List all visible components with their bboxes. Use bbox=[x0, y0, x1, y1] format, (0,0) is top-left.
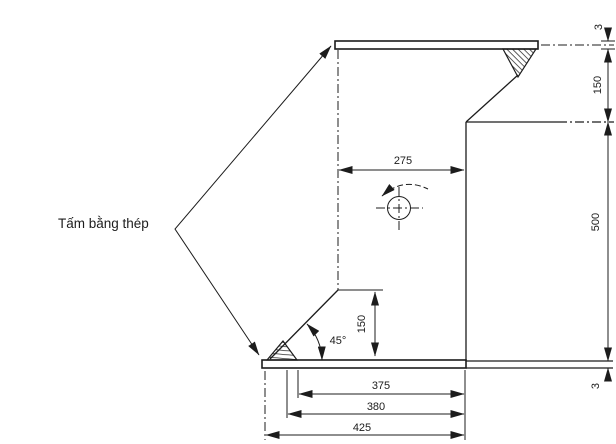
dim-value-web-height: 500 bbox=[590, 213, 602, 231]
dim-value: 275 bbox=[394, 155, 412, 167]
dim-value: 380 bbox=[367, 401, 385, 413]
chamfer-45-edge bbox=[270, 290, 338, 359]
drawing-sheet: Tấm bằng thép 275 150 45° 375 380 425 bbox=[0, 0, 616, 444]
top-bevel-edge bbox=[466, 75, 518, 122]
dim-value: 375 bbox=[372, 380, 390, 392]
dim-chamfer-height: 150 bbox=[356, 292, 375, 356]
engineering-drawing: Tấm bằng thép 275 150 45° 375 380 425 bbox=[0, 0, 616, 444]
dim-right-column: 3 150 500 3 bbox=[590, 24, 615, 389]
dim-value: 45° bbox=[330, 335, 347, 347]
dim-chamfer-angle: 45° bbox=[307, 324, 346, 360]
dim-value: 425 bbox=[353, 422, 371, 434]
dim-bottom-width-mid: 380 bbox=[288, 401, 464, 414]
angle-arc bbox=[307, 324, 322, 360]
top-steel-plate bbox=[335, 41, 538, 49]
plate-leader-line bbox=[175, 46, 331, 355]
dim-bottom-width-inner: 375 bbox=[299, 380, 464, 394]
dim-value-flange-offset: 150 bbox=[592, 76, 604, 94]
bottom-steel-plate bbox=[262, 360, 466, 368]
plate-label: Tấm bằng thép bbox=[58, 216, 149, 231]
top-weld-fillet bbox=[503, 49, 536, 77]
rotation-arrow-icon bbox=[382, 184, 428, 196]
rotation-center-symbol bbox=[376, 184, 428, 231]
dim-value-top-thickness: 3 bbox=[593, 24, 605, 30]
dim-value: 150 bbox=[356, 315, 368, 333]
dim-bottom-width-outer: 425 bbox=[266, 422, 464, 435]
dim-value-bottom-thickness: 3 bbox=[590, 383, 602, 389]
dim-top-face-width: 275 bbox=[339, 155, 464, 170]
